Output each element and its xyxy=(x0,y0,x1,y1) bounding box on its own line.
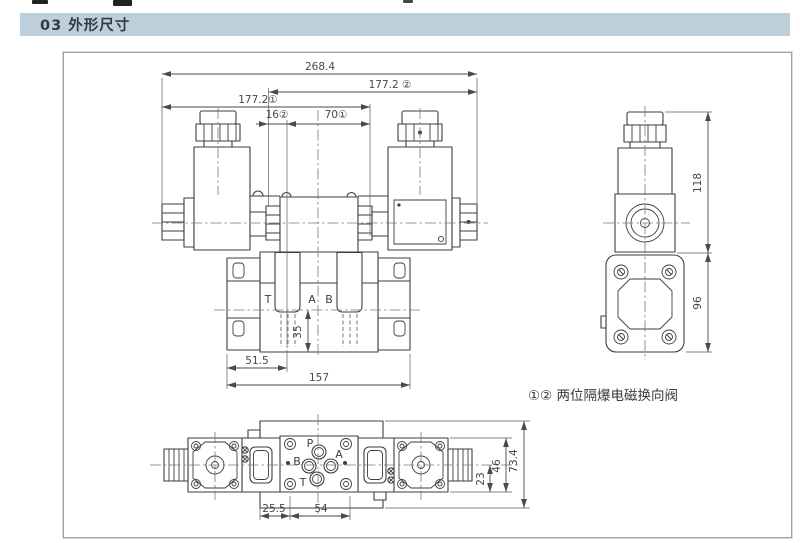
nameplate-screw xyxy=(397,203,400,206)
dim-overall-height: 73.4 xyxy=(508,449,520,473)
pin-hole xyxy=(286,461,290,465)
figure-caption: ①② 两位隔爆电磁换向阀 xyxy=(528,388,678,404)
side-tab xyxy=(601,316,606,328)
dim-body-width: 46 xyxy=(491,459,503,473)
left-flange xyxy=(184,198,194,247)
spool-cavity xyxy=(337,253,362,313)
left-tube xyxy=(250,212,266,236)
body-screw-dome xyxy=(347,193,356,198)
right-flange xyxy=(452,198,460,247)
tab xyxy=(374,492,386,500)
side-view: 118 96 xyxy=(601,106,712,360)
dim-base-width: 157 xyxy=(309,372,329,384)
port-label-b: B xyxy=(325,293,333,306)
port-label-a: A xyxy=(308,293,316,306)
port-label-t: T xyxy=(264,293,272,306)
port-label-p: P xyxy=(307,437,314,450)
bottom-view: P A B T 25.5 54 23 46 73.4 xyxy=(150,414,530,520)
subplate-left-lug xyxy=(227,258,260,350)
dim-depth-35: 35 xyxy=(292,325,304,338)
dim-width-left: 177.2① xyxy=(238,94,277,106)
dim-width-right: 177.2 ② xyxy=(369,79,412,91)
valve-body xyxy=(280,197,358,252)
port-label-b: B xyxy=(293,455,301,468)
body-screw-dome xyxy=(282,193,291,197)
spool-cavity xyxy=(275,253,300,313)
dim-overall-width: 268.4 xyxy=(305,61,335,73)
dim-center-to-edge: 23 xyxy=(475,472,487,485)
dimension-drawing: T A B 268.4 177.2 ② 177.2① 16② 70① 35 51… xyxy=(0,0,800,543)
dim-offset-16: 16② xyxy=(266,109,289,121)
dim-spacing-70: 70① xyxy=(325,109,348,121)
dim-offset-51-5: 51.5 xyxy=(245,355,268,367)
dim-spacing-54: 54 xyxy=(314,503,328,515)
dim-offset-25-5: 25.5 xyxy=(262,503,285,515)
dim-upper-height: 118 xyxy=(692,173,704,193)
tab xyxy=(248,430,260,438)
pin-hole xyxy=(343,461,347,465)
dim-lower-height: 96 xyxy=(692,296,704,310)
mounting-screw-dome xyxy=(253,191,263,196)
left-solenoid-housing xyxy=(194,147,250,250)
port-label-t: T xyxy=(299,476,307,489)
right-tube xyxy=(372,212,388,236)
port-label-a: A xyxy=(335,448,343,461)
